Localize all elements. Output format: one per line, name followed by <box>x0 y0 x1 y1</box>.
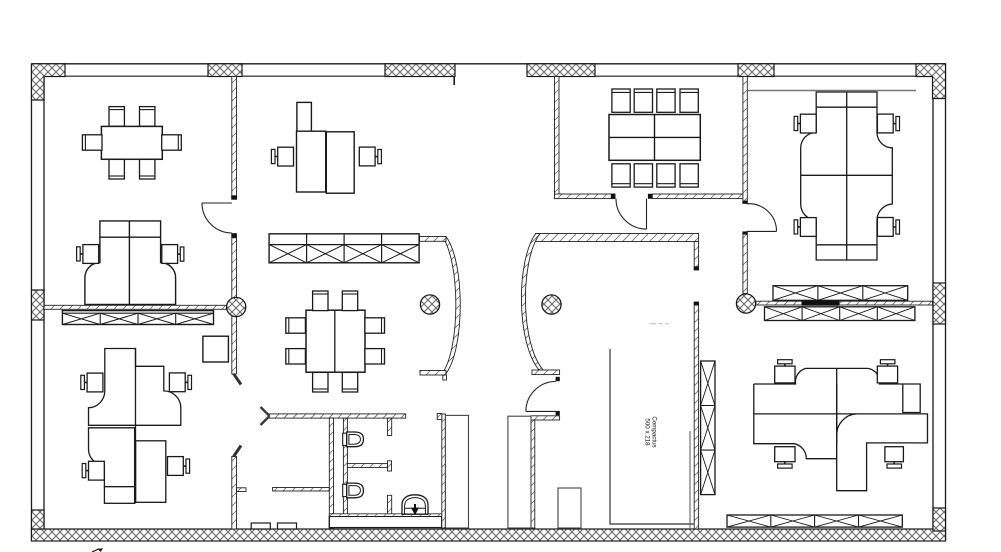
svg-text:Compactus: Compactus <box>651 416 658 447</box>
svg-text:500 x 218: 500 x 218 <box>644 418 651 446</box>
